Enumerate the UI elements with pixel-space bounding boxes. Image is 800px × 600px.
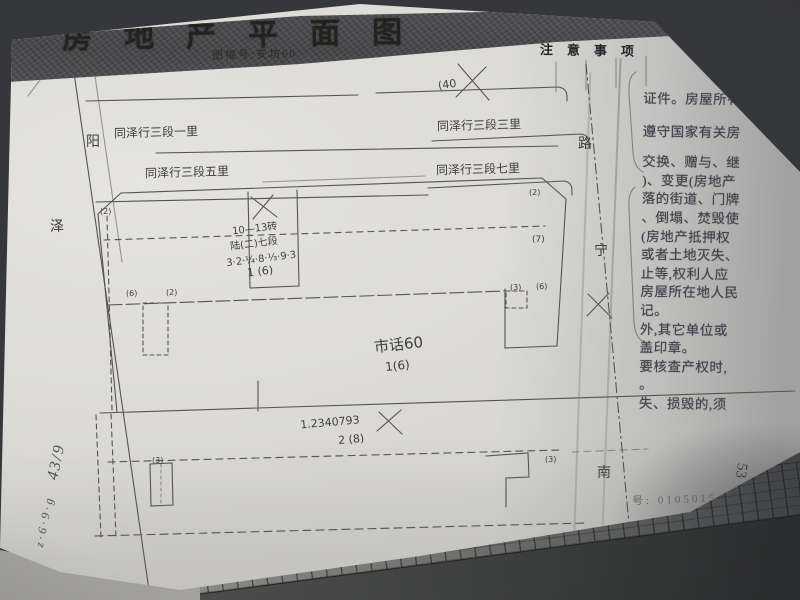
- lot-label-mid-right-b: (6): [536, 282, 547, 291]
- lot-label-right-edge: (7): [532, 235, 545, 245]
- lot-label-mid-left-a: (6): [126, 289, 137, 298]
- notes-line: 交换、赠与、继: [642, 153, 798, 174]
- lot-label-south-left: (3): [152, 456, 163, 465]
- page-number: 53: [731, 462, 750, 479]
- map-sheet-number: 图幅号:安坊60: [212, 45, 297, 63]
- photo-of-plan-document: 阳 泽 同泽行三段一里 同泽行三段三里 同泽行三段五里 同泽行三段七里 路 (4…: [0, 0, 800, 600]
- west-street-label-lower: 泽: [50, 219, 64, 235]
- lot-label-mid-left-b: (2): [166, 288, 177, 297]
- notes-line: 房屋所在地人民: [640, 283, 796, 304]
- lane-row2-right-label: 同泽行三段七里: [436, 160, 520, 177]
- notes-line: 或者土地灭失、: [641, 246, 797, 267]
- lot-label-top-left: (2): [100, 207, 111, 216]
- plan-paper-sheet: 阳 泽 同泽行三段一里 同泽行三段三里 同泽行三段五里 同泽行三段七里 路 (4…: [0, 0, 800, 600]
- lane-row1-right-label: 同泽行三段三里: [437, 116, 521, 133]
- notes-line: )、变更(房地产: [642, 172, 798, 193]
- parcel-center-label-line2: 1(6): [384, 358, 410, 374]
- notes-line: 落的街道、门牌: [642, 190, 798, 211]
- west-street-label-upper: 阳: [86, 134, 100, 150]
- notes-line: 证件。房屋所有: [643, 90, 799, 111]
- notes-section-title: 注意事项: [540, 39, 648, 60]
- lane-row1-left-label: 同泽行三段一里: [114, 123, 198, 140]
- serial-label: 号:: [632, 495, 652, 508]
- east-street-label: 宁: [594, 242, 608, 259]
- parcel-note-line4: 1 (6): [246, 263, 273, 279]
- notes-line: 遵守国家有关房: [643, 123, 799, 144]
- notes-line: 止等,权利人应: [641, 265, 797, 286]
- bottom-note-line2: 2 (8): [338, 432, 365, 447]
- notes-line: 记。: [640, 302, 796, 323]
- lot-label-mid-right-a: (3): [510, 283, 521, 292]
- lot-label-top-right: (2): [529, 188, 540, 197]
- printed-notes-column: 证件。房屋所有 遵守国家有关房 交换、赠与、继 )、变更(房地产 落的街道、门牌…: [639, 90, 800, 416]
- notes-line: 要核查产权时,: [639, 358, 795, 379]
- bottom-note-line1: 1.2340793: [300, 413, 360, 431]
- top-mark-text: (40: [437, 77, 457, 92]
- notes-line: 。: [639, 376, 795, 397]
- parcel-block: (2) (2) (7) (6) (2) (3) (6) 10—13砖 陆(二)七…: [98, 178, 566, 412]
- top-survey-mark: (40: [437, 64, 489, 100]
- parcel-center-label-line1: 市话60: [373, 333, 424, 356]
- road-character: 路: [578, 136, 592, 152]
- notes-line: 失、损毁的,须: [639, 395, 795, 416]
- notes-line: 、倒塌、焚毁使: [641, 209, 797, 230]
- lane-row2-left-label: 同泽行三段五里: [145, 163, 229, 180]
- notes-line: 盖印章。: [640, 339, 796, 360]
- notes-line: 外,其它单位或: [640, 320, 796, 341]
- notes-column-braces: [28, 56, 646, 342]
- notes-line: (房地产抵押权: [641, 227, 797, 248]
